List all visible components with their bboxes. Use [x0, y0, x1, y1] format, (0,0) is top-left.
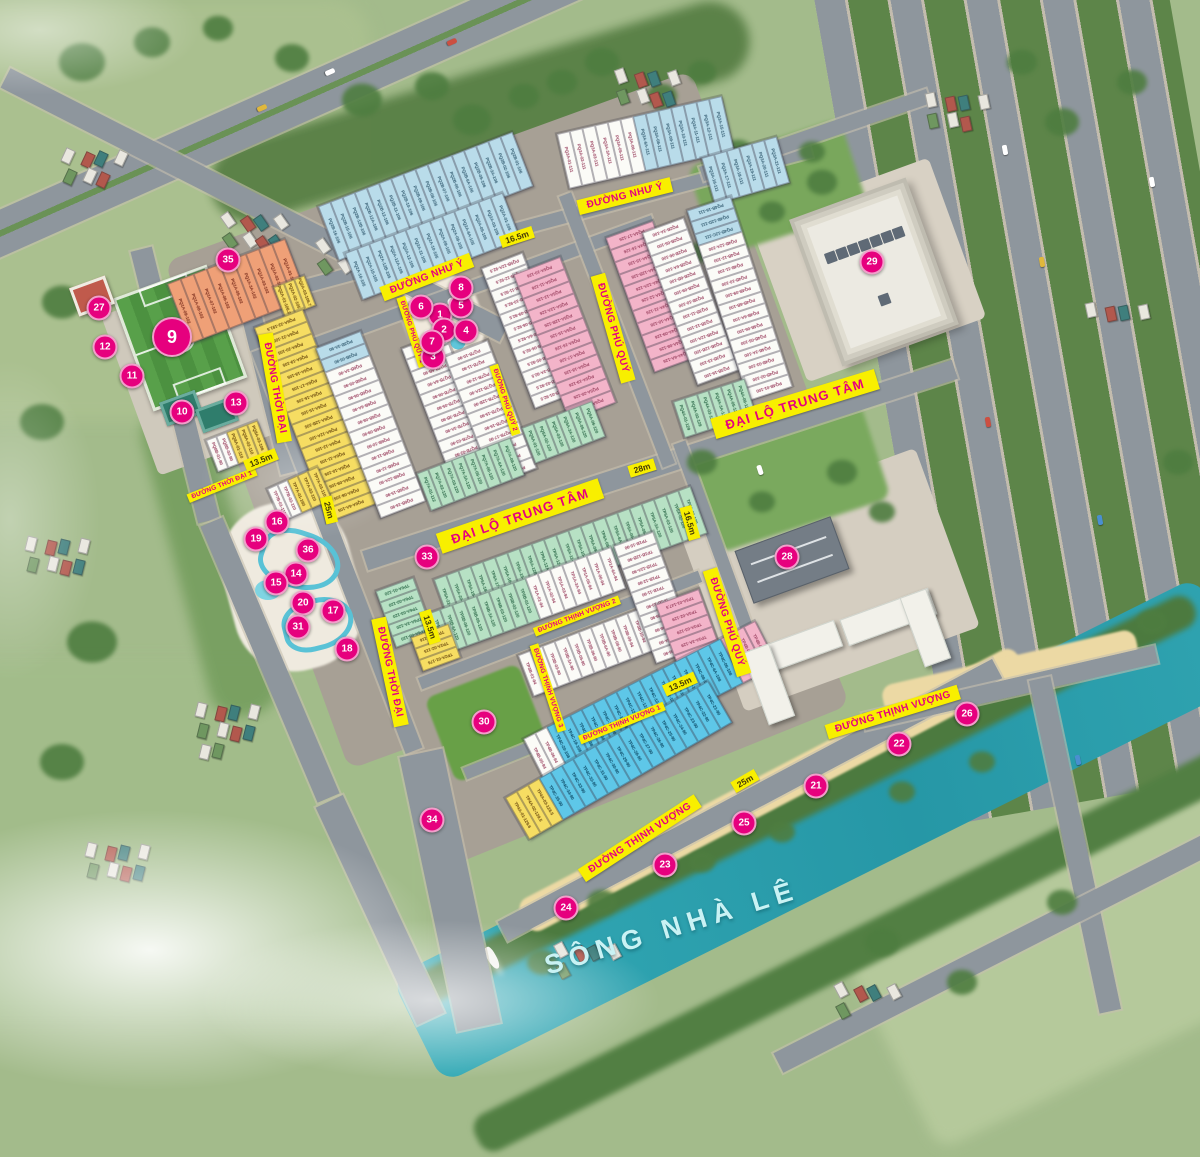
- tree: [687, 450, 717, 475]
- marker-24[interactable]: 24: [554, 896, 579, 921]
- marker-18[interactable]: 18: [335, 637, 360, 662]
- tree: [1137, 610, 1167, 635]
- tree: [1163, 450, 1193, 475]
- tree: [134, 27, 170, 57]
- village-house: [833, 981, 849, 999]
- masterplan-map: SÔNG NHÀ LÊ PQ2B-16-106PQ2B-15-106PQ2B-1…: [0, 0, 1200, 1018]
- marker-8[interactable]: 8: [449, 276, 474, 301]
- marker-10[interactable]: 10: [170, 400, 195, 425]
- marker-31[interactable]: 31: [286, 615, 311, 640]
- tree: [453, 104, 491, 135]
- tree: [947, 970, 977, 995]
- tree: [1047, 890, 1077, 915]
- tree: [547, 70, 577, 95]
- tree: [415, 72, 449, 100]
- marker-22[interactable]: 22: [887, 732, 912, 757]
- tree: [1045, 108, 1079, 136]
- marker-20[interactable]: 20: [291, 591, 316, 616]
- marker-7[interactable]: 7: [420, 330, 445, 355]
- marker-27[interactable]: 27: [87, 296, 112, 321]
- marker-36[interactable]: 36: [296, 538, 321, 563]
- marker-13[interactable]: 13: [224, 391, 249, 416]
- marker-15[interactable]: 15: [264, 571, 289, 596]
- marker-9[interactable]: 9: [152, 317, 192, 357]
- village-house: [26, 557, 39, 574]
- tree: [342, 84, 382, 117]
- tree: [807, 170, 837, 195]
- tree: [20, 404, 64, 440]
- tree: [203, 16, 233, 41]
- marker-34[interactable]: 34: [420, 808, 445, 833]
- marker-12[interactable]: 12: [93, 335, 118, 360]
- tree: [827, 460, 857, 485]
- tree: [67, 622, 117, 663]
- marker-16[interactable]: 16: [265, 510, 290, 535]
- marker-23[interactable]: 23: [653, 853, 678, 878]
- masterplan-page: { "map": { "river_label": "SÔNG NHÀ LÊ",…: [0, 0, 1200, 1018]
- marker-26[interactable]: 26: [955, 702, 980, 727]
- tree: [1117, 70, 1147, 95]
- village-house: [77, 538, 90, 555]
- tree: [509, 84, 539, 109]
- village-house: [72, 559, 85, 576]
- marker-29[interactable]: 29: [860, 250, 885, 275]
- marker-19[interactable]: 19: [244, 527, 269, 552]
- marker-25[interactable]: 25: [732, 811, 757, 836]
- marker-6[interactable]: 6: [409, 295, 434, 320]
- tree: [1007, 50, 1037, 75]
- marker-4[interactable]: 4: [454, 319, 479, 344]
- village-house: [24, 536, 37, 553]
- village-house: [46, 556, 59, 573]
- tree: [275, 44, 309, 72]
- marker-21[interactable]: 21: [804, 774, 829, 799]
- marker-30[interactable]: 30: [472, 710, 497, 735]
- village-house: [57, 539, 70, 556]
- marker-33[interactable]: 33: [415, 545, 440, 570]
- tree: [688, 61, 716, 84]
- village-house: [59, 560, 72, 577]
- marker-17[interactable]: 17: [321, 599, 346, 624]
- village-house: [44, 540, 57, 557]
- marker-35[interactable]: 35: [216, 248, 241, 273]
- tree: [865, 928, 899, 956]
- tree: [587, 890, 617, 915]
- tree: [40, 744, 84, 780]
- marker-28[interactable]: 28: [775, 545, 800, 570]
- marker-11[interactable]: 11: [120, 364, 145, 389]
- tree: [59, 43, 105, 81]
